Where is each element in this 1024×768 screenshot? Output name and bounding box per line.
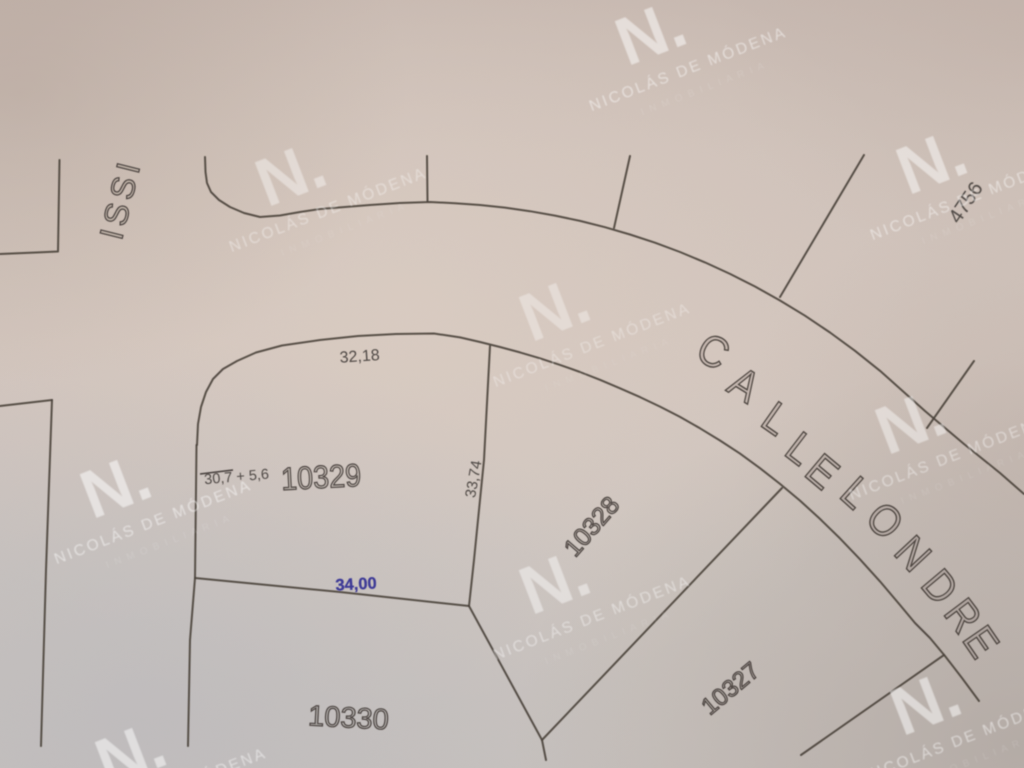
svg-text:34,00: 34,00: [335, 574, 377, 594]
svg-text:10330: 10330: [307, 700, 389, 736]
svg-text:32,18: 32,18: [339, 347, 380, 367]
svg-text:10329: 10329: [280, 458, 362, 498]
